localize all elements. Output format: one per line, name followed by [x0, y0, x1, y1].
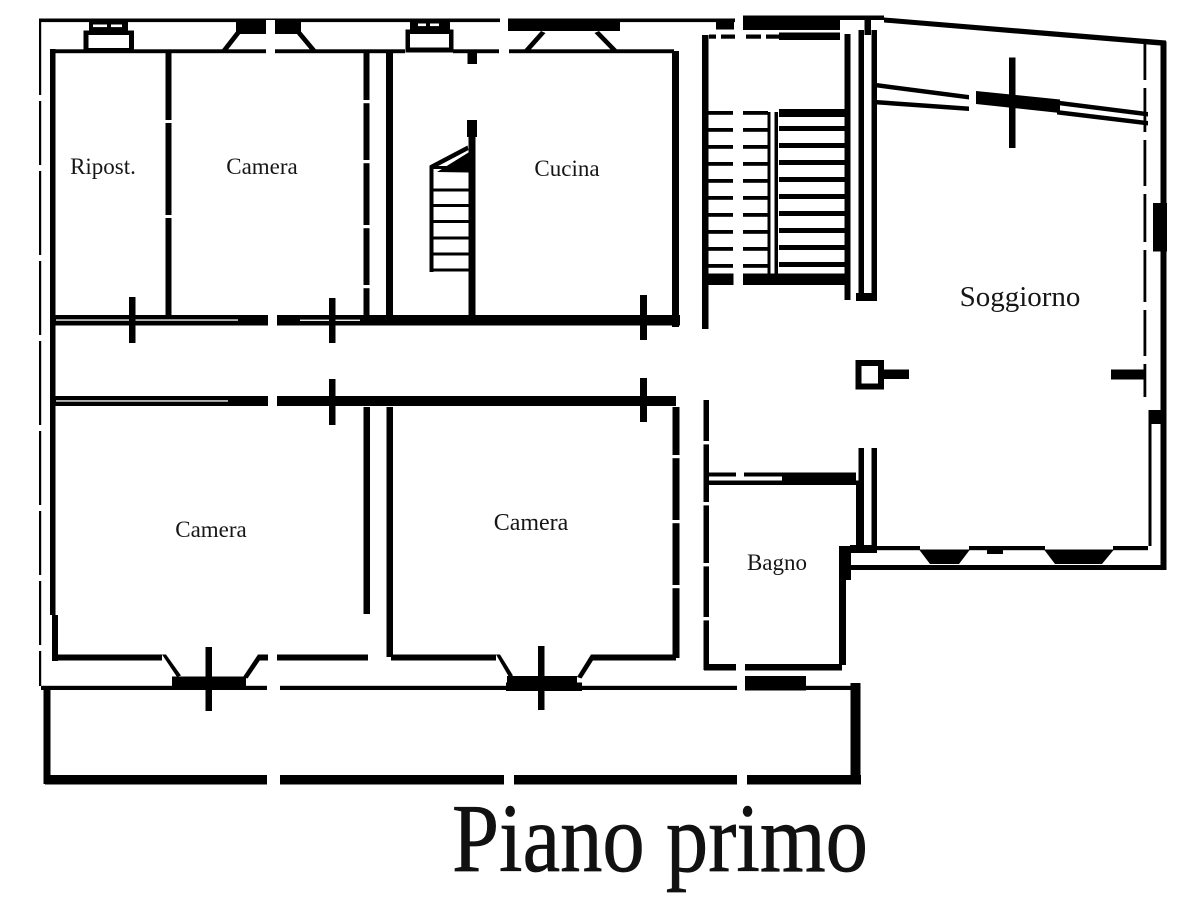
svg-text:Ripost.: Ripost. — [70, 154, 136, 179]
svg-text:Piano primo: Piano primo — [452, 785, 868, 893]
svg-text:Cucina: Cucina — [534, 156, 599, 181]
svg-text:Soggiorno: Soggiorno — [960, 281, 1081, 313]
svg-text:Camera: Camera — [175, 517, 247, 542]
svg-text:Bagno: Bagno — [747, 550, 807, 575]
svg-text:Camera: Camera — [226, 154, 298, 179]
svg-text:Camera: Camera — [494, 510, 569, 536]
